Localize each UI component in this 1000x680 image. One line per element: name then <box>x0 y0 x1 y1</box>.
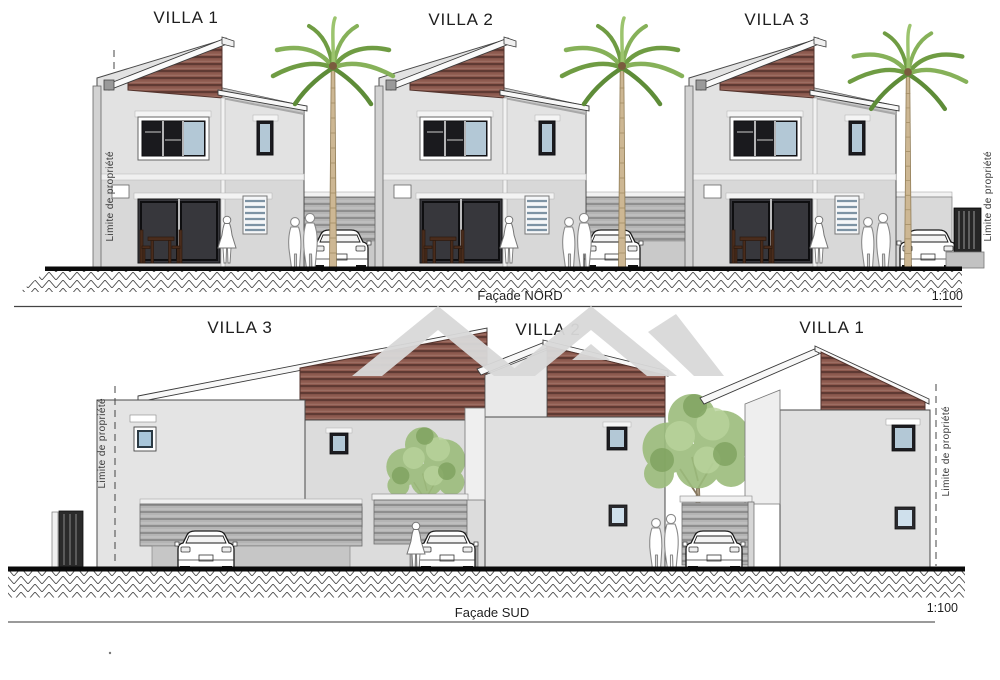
architectural-elevation-sheet: VILLA 1 VILLA 2 VILLA 3 VILLA 3 VILLA 2 … <box>0 0 1000 680</box>
property-limit-label-north-right: Limite de propriété <box>983 151 994 241</box>
small-window <box>609 505 627 526</box>
facade-nord-caption: Façade NORD <box>477 288 562 303</box>
property-limit-label-south-left: Limite de propriété <box>97 398 108 488</box>
scale-south: 1:100 <box>927 601 958 615</box>
property-limit-label-north-left: Limite de propriété <box>105 151 116 241</box>
dark-fence <box>52 511 83 568</box>
small-window <box>326 428 352 454</box>
small-window <box>603 422 631 450</box>
villa-3-south-label: VILLA 3 <box>207 318 272 338</box>
ground-hatch <box>8 572 965 598</box>
elevation-drawing <box>0 0 1000 680</box>
villa-3-north-label: VILLA 3 <box>744 10 809 30</box>
ground-line <box>8 567 965 572</box>
villa-1-north <box>93 37 307 268</box>
villa-2-south-label: VILLA 2 <box>515 320 580 340</box>
ground-line <box>45 267 962 272</box>
scale-north: 1:100 <box>932 289 963 303</box>
small-window <box>134 427 156 451</box>
villa-1-south-label: VILLA 1 <box>799 318 864 338</box>
north-elevation-scene <box>14 18 984 307</box>
villa-1-north-label: VILLA 1 <box>153 8 218 28</box>
villa-2-north-label: VILLA 2 <box>428 10 493 30</box>
property-limit-label-south-right: Limite de propriété <box>941 406 952 496</box>
villa-2-north <box>375 37 589 268</box>
facade-sud-caption: Façade SUD <box>455 605 529 620</box>
small-window <box>895 507 915 529</box>
